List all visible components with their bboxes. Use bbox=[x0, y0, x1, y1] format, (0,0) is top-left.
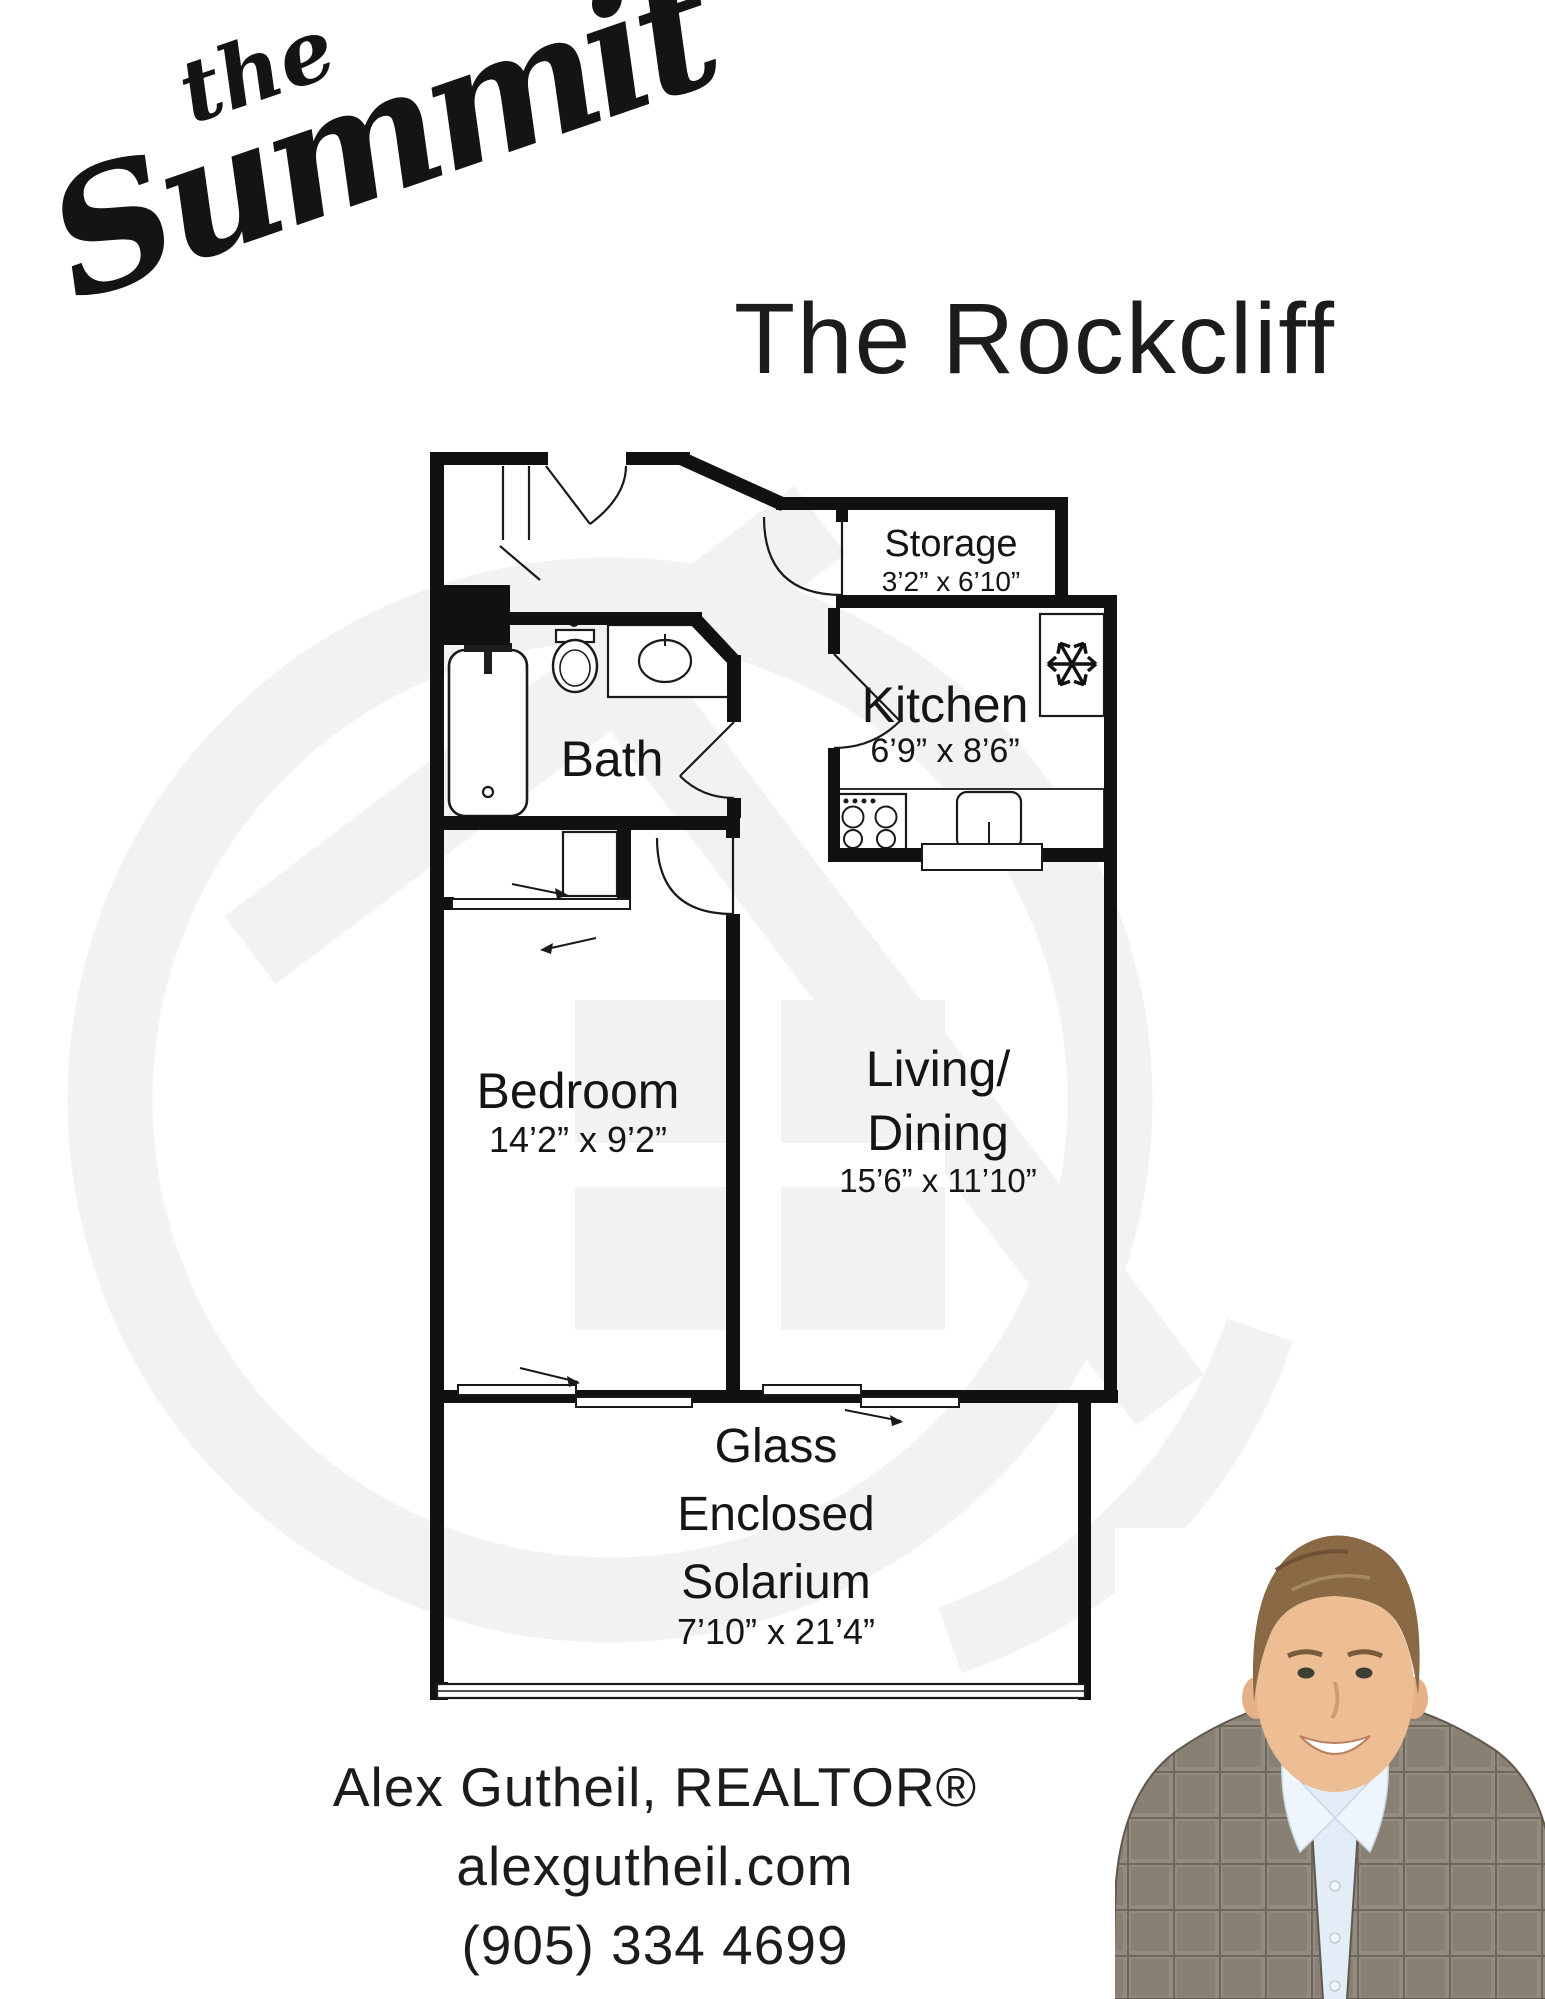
room-label-solarium-2: Enclosed bbox=[677, 1488, 874, 1541]
serving-hatch bbox=[922, 844, 1042, 870]
room-label-solarium-3: Solarium bbox=[681, 1556, 870, 1609]
footer-contact: Alex Gutheil, REALTOR® alexgutheil.com (… bbox=[285, 1748, 1025, 1985]
room-dims-solarium: 7’10” x 21’4” bbox=[677, 1611, 875, 1652]
room-label-bedroom: Bedroom bbox=[477, 1063, 680, 1119]
room-label-solarium-1: Glass bbox=[715, 1420, 838, 1473]
realtor-photo bbox=[1112, 1528, 1545, 1999]
room-label-living-2: Dining bbox=[867, 1105, 1009, 1161]
solarium-window-wall bbox=[437, 1684, 1085, 1698]
agent-phone: (905) 334 4699 bbox=[285, 1906, 1025, 1985]
room-label-kitchen: Kitchen bbox=[862, 677, 1029, 733]
entry-door-swing bbox=[546, 466, 626, 524]
room-dims-kitchen: 6’9” x 8’6” bbox=[870, 732, 1019, 770]
room-label-storage: Storage bbox=[884, 523, 1017, 565]
flyer-page: the Summit The Rockcliff bbox=[0, 0, 1545, 1999]
room-dims-living: 15’6” x 11’10” bbox=[839, 1162, 1037, 1199]
bathtub-icon bbox=[449, 643, 527, 816]
agent-name: Alex Gutheil, REALTOR® bbox=[285, 1748, 1025, 1827]
bedroom-closet bbox=[563, 832, 617, 896]
room-label-bath: Bath bbox=[561, 731, 664, 787]
toilet-icon bbox=[553, 618, 597, 692]
kitchen-sink-icon bbox=[957, 792, 1021, 849]
room-label-living-1: Living/ bbox=[866, 1041, 1011, 1097]
agent-website: alexgutheil.com bbox=[285, 1827, 1025, 1906]
floorplan-svg: Storage 3’2” x 6’10” Kitchen 6’9” x 8’6”… bbox=[0, 0, 1545, 1999]
room-dims-bedroom: 14’2” x 9’2” bbox=[489, 1119, 667, 1160]
room-dims-storage: 3’2” x 6’10” bbox=[882, 566, 1021, 597]
stove-icon bbox=[836, 794, 906, 851]
